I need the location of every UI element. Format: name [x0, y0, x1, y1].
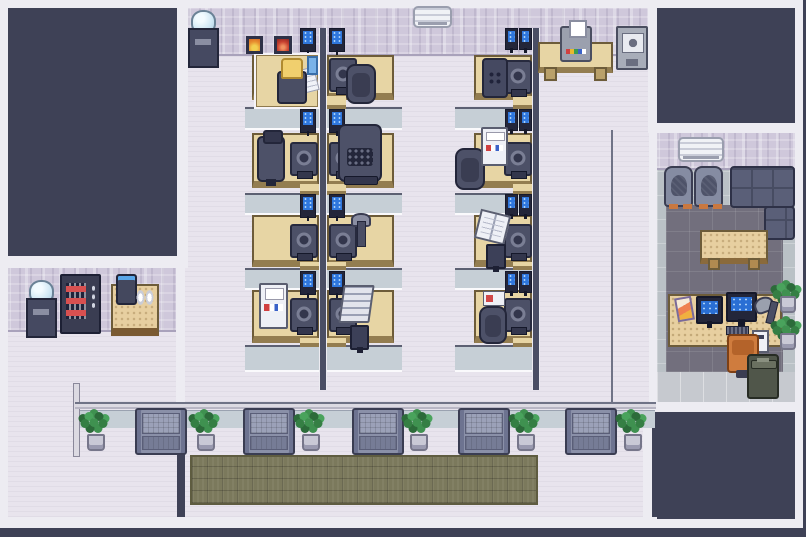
void-room-bottom-right — [652, 412, 795, 519]
monitor-r2b — [519, 109, 532, 131]
monitor-l3b — [329, 194, 345, 218]
border-lounge-east — [795, 133, 803, 412]
ac-unit-north — [413, 6, 452, 28]
ac-unit-lounge — [678, 137, 724, 162]
wall-poster-red[interactable] — [274, 36, 292, 54]
border-topleft-south — [0, 256, 177, 268]
floor-monitor-r3[interactable] — [486, 244, 506, 269]
npc-office-worker[interactable] — [277, 58, 303, 100]
office-chair-l1[interactable] — [346, 64, 376, 104]
desk-return-l3b — [327, 262, 346, 270]
printer[interactable] — [560, 26, 592, 62]
workstation-computer-r4[interactable] — [504, 298, 532, 332]
lounge-plant-2 — [774, 313, 798, 351]
lounge-plant-1 — [774, 277, 798, 314]
desk-return-l4a — [300, 338, 319, 347]
desk-return-r3 — [513, 262, 532, 270]
office-chair-r4[interactable] — [479, 306, 507, 344]
waiting-bench-1[interactable] — [135, 408, 187, 455]
potted-plant-3 — [295, 406, 323, 452]
border-top — [0, 0, 803, 8]
monitor-r3a — [505, 194, 518, 216]
potted-plant-2 — [190, 406, 218, 452]
waiting-bench-3[interactable] — [352, 408, 404, 455]
tower-computer-r1[interactable] — [482, 58, 508, 98]
desk-supplies-r4[interactable] — [483, 291, 505, 306]
desk-return-r1 — [513, 96, 532, 109]
vending-machine[interactable] — [60, 274, 101, 334]
workstation-computer-l3a[interactable] — [290, 224, 318, 258]
lounge-table — [700, 230, 768, 264]
border-bottomright-south — [643, 519, 803, 528]
workstation-computer-l2a[interactable] — [290, 142, 318, 176]
monitor-l1b — [329, 28, 345, 52]
water-cooler-breakroom[interactable] — [26, 280, 53, 334]
border-bottomright-east — [795, 412, 803, 528]
lounge-monitor-2[interactable] — [726, 292, 757, 322]
partition-right-column — [532, 28, 540, 390]
border-topright-west — [648, 8, 657, 133]
potted-plant-1 — [80, 406, 108, 452]
border-bottomright-north — [643, 402, 803, 412]
workstation-computer-r3[interactable] — [504, 224, 532, 258]
waiting-bench-2[interactable] — [243, 408, 295, 455]
desk-return-r4 — [513, 338, 532, 347]
fax-machine-l4[interactable] — [259, 283, 288, 329]
border-topright-south — [648, 123, 803, 133]
lounge-monitor-1[interactable] — [696, 296, 723, 324]
desk-lamp-l3 — [344, 210, 374, 248]
monitor-r4a — [505, 271, 518, 293]
fax-machine-r2[interactable] — [481, 127, 508, 166]
monitor-l1a — [300, 28, 316, 52]
monitor-r3b — [519, 194, 532, 216]
void-room-top-left — [8, 8, 177, 256]
trash-bin[interactable] — [747, 354, 779, 399]
lounge-armchair-1[interactable] — [664, 166, 693, 207]
desk-return-l4b — [327, 338, 346, 347]
workstation-computer-r2[interactable] — [504, 142, 532, 176]
office-chair-l2[interactable] — [257, 136, 285, 182]
workstation-computer-l4a[interactable] — [290, 298, 318, 332]
workstation-computer-r1[interactable] — [504, 60, 532, 94]
cubicle-screen-panel — [307, 56, 318, 75]
office-east-wall — [611, 130, 613, 402]
void-room-top-right — [657, 8, 795, 123]
lounge-sofa-side[interactable] — [764, 206, 795, 240]
border-lounge-west — [649, 133, 657, 412]
waiting-bench-5[interactable] — [565, 408, 617, 455]
monitor-r4b — [519, 271, 532, 293]
entry-mat — [190, 455, 538, 505]
copier-machine[interactable] — [616, 26, 648, 70]
border-topleft-east — [177, 8, 188, 268]
desk-return-l3a — [300, 262, 319, 270]
monitor-r1b — [519, 28, 532, 50]
desk-return-l1b — [327, 96, 346, 109]
wall-poster-orange[interactable] — [246, 36, 263, 54]
monitor-l4a — [300, 271, 316, 295]
waiting-bench-4[interactable] — [458, 408, 510, 455]
monitor-l2a — [300, 109, 316, 133]
border-bottom-main — [8, 517, 657, 528]
monitor-r1a — [505, 28, 518, 50]
lounge-armchair-2[interactable] — [694, 166, 723, 207]
cubicle-band-right-4 — [455, 345, 535, 372]
floor-monitor-l4[interactable] — [350, 325, 369, 350]
potted-plant-5 — [510, 406, 538, 452]
game-map — [0, 0, 806, 537]
water-cooler-north[interactable] — [188, 10, 215, 64]
border-breakroom-east — [176, 268, 185, 405]
monitor-l3a — [300, 194, 316, 218]
potted-plant-6 — [617, 406, 645, 452]
machine-unit-l2[interactable] — [338, 124, 382, 182]
bench-rail-pole — [73, 383, 80, 457]
coffee-station[interactable] — [111, 284, 159, 336]
lounge-sofa-top[interactable] — [730, 166, 795, 208]
paper-stack-l4[interactable] — [338, 285, 374, 323]
border-left — [0, 8, 8, 528]
potted-plant-4 — [403, 406, 431, 452]
partition-left-column — [319, 28, 327, 390]
border-topright-east — [795, 0, 803, 133]
